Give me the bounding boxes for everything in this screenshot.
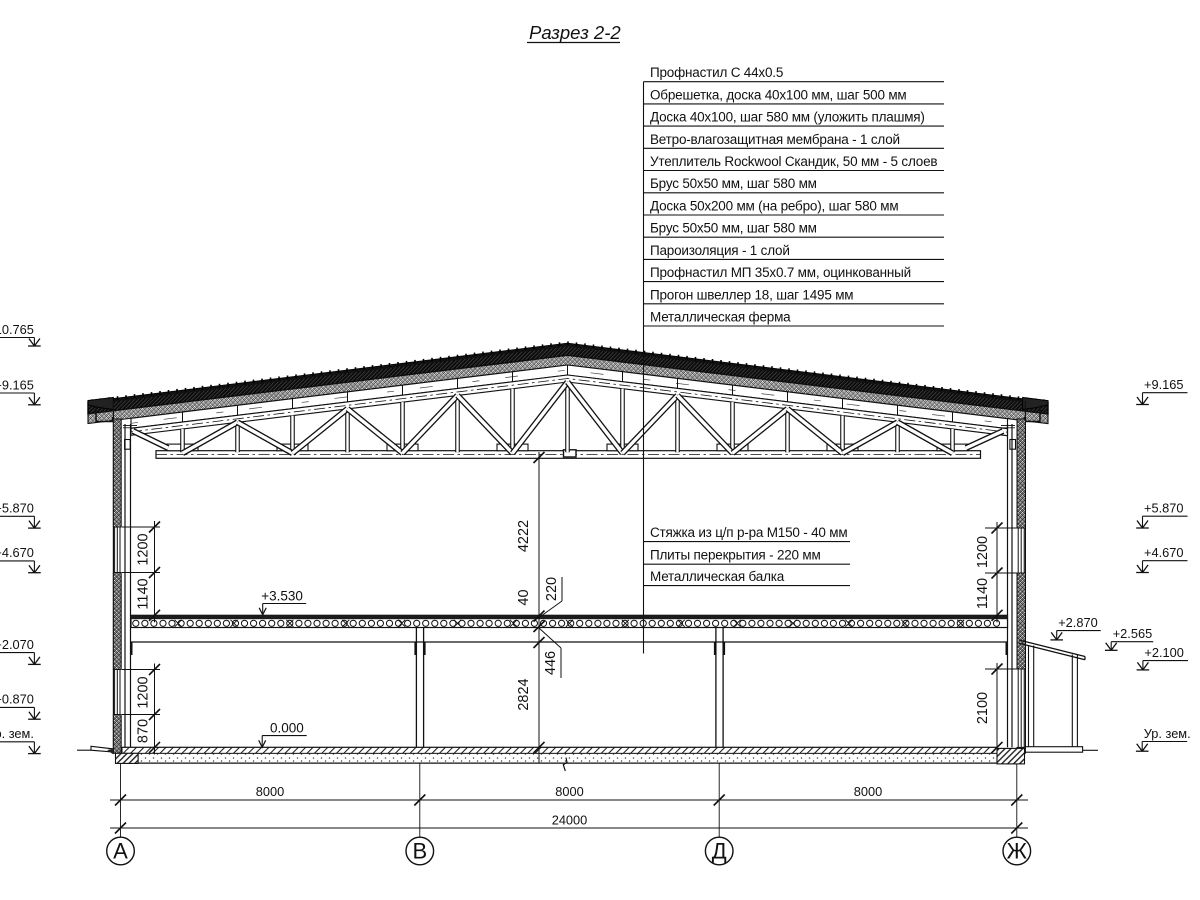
svg-text:1200: 1200 <box>136 533 152 565</box>
svg-text:Плиты перекрытия - 220 мм: Плиты перекрытия - 220 мм <box>650 548 821 563</box>
svg-text:А: А <box>113 839 128 864</box>
svg-text:Прогон швеллер 18, шаг 1495 мм: Прогон швеллер 18, шаг 1495 мм <box>650 287 853 302</box>
svg-text:+2.070: +2.070 <box>0 637 34 652</box>
svg-text:Профнастил МП 35х0.7 мм, оцинк: Профнастил МП 35х0.7 мм, оцинкованный <box>650 265 911 280</box>
svg-text:446: 446 <box>543 651 559 675</box>
svg-text:Ур. зем.: Ур. зем. <box>1144 726 1191 741</box>
svg-text:Ж: Ж <box>1007 839 1028 864</box>
svg-text:+0.870: +0.870 <box>0 692 34 707</box>
svg-text:Металлическая ферма: Металлическая ферма <box>650 310 791 325</box>
svg-text:1200: 1200 <box>136 676 152 708</box>
svg-text:2100: 2100 <box>975 692 991 724</box>
svg-text:+9.165: +9.165 <box>0 377 34 392</box>
svg-text:8000: 8000 <box>256 784 284 799</box>
svg-text:+2.870: +2.870 <box>1058 615 1098 630</box>
svg-text:870: 870 <box>136 719 152 743</box>
svg-text:Доска 50х200 мм (на ребро), ша: Доска 50х200 мм (на ребро), шаг 580 мм <box>650 199 898 214</box>
svg-text:Разрез 2-2: Разрез 2-2 <box>529 22 621 43</box>
svg-text:2824: 2824 <box>516 678 532 710</box>
svg-text:+4.670: +4.670 <box>1144 545 1184 560</box>
svg-text:+2.100: +2.100 <box>1144 645 1184 660</box>
svg-text:Брус 50х50 мм, шаг 580 мм: Брус 50х50 мм, шаг 580 мм <box>650 176 817 191</box>
svg-text:1140: 1140 <box>975 578 991 609</box>
svg-text:+2.565: +2.565 <box>1113 626 1153 641</box>
svg-text:Доска 40х100, шаг 580 мм (улож: Доска 40х100, шаг 580 мм (уложить плашмя… <box>650 110 925 125</box>
svg-text:4222: 4222 <box>516 520 532 552</box>
svg-text:Металлическая балка: Металлическая балка <box>650 569 785 584</box>
svg-text:+5.870: +5.870 <box>0 501 34 516</box>
svg-text:24000: 24000 <box>552 813 588 828</box>
svg-text:+3.530: +3.530 <box>261 589 303 604</box>
svg-text:Ветро-влагозащитная мембрана -: Ветро-влагозащитная мембрана - 1 слой <box>650 132 900 147</box>
svg-text:220: 220 <box>544 577 560 601</box>
svg-text:Обрешетка, доска 40х100 мм, ша: Обрешетка, доска 40х100 мм, шаг 500 мм <box>650 87 907 102</box>
svg-text:1140: 1140 <box>136 578 152 609</box>
svg-text:1200: 1200 <box>975 536 991 568</box>
svg-text:В: В <box>412 839 427 864</box>
svg-text:Ур. зем.: Ур. зем. <box>0 726 34 741</box>
svg-text:8000: 8000 <box>555 784 583 799</box>
svg-text:0.000: 0.000 <box>270 721 304 736</box>
svg-text:+9.165: +9.165 <box>1144 377 1184 392</box>
svg-text:+4.670: +4.670 <box>0 545 34 560</box>
svg-text:8000: 8000 <box>854 784 882 799</box>
svg-text:Стяжка из ц/п р-ра М150 - 40 м: Стяжка из ц/п р-ра М150 - 40 мм <box>650 525 847 540</box>
svg-text:40: 40 <box>516 589 532 605</box>
svg-text:Утеплитель Rockwool Скандик, 5: Утеплитель Rockwool Скандик, 50 мм - 5 с… <box>650 154 937 169</box>
svg-text:Брус 50х50 мм, шаг 580 мм: Брус 50х50 мм, шаг 580 мм <box>650 221 817 236</box>
svg-text:+5.870: +5.870 <box>1144 501 1184 516</box>
svg-text:Профнастил С 44х0.5: Профнастил С 44х0.5 <box>650 65 783 80</box>
svg-text:+10.765: +10.765 <box>0 322 34 337</box>
svg-text:Д: Д <box>712 839 727 864</box>
svg-text:Пароизоляция - 1 слой: Пароизоляция - 1 слой <box>650 243 790 258</box>
